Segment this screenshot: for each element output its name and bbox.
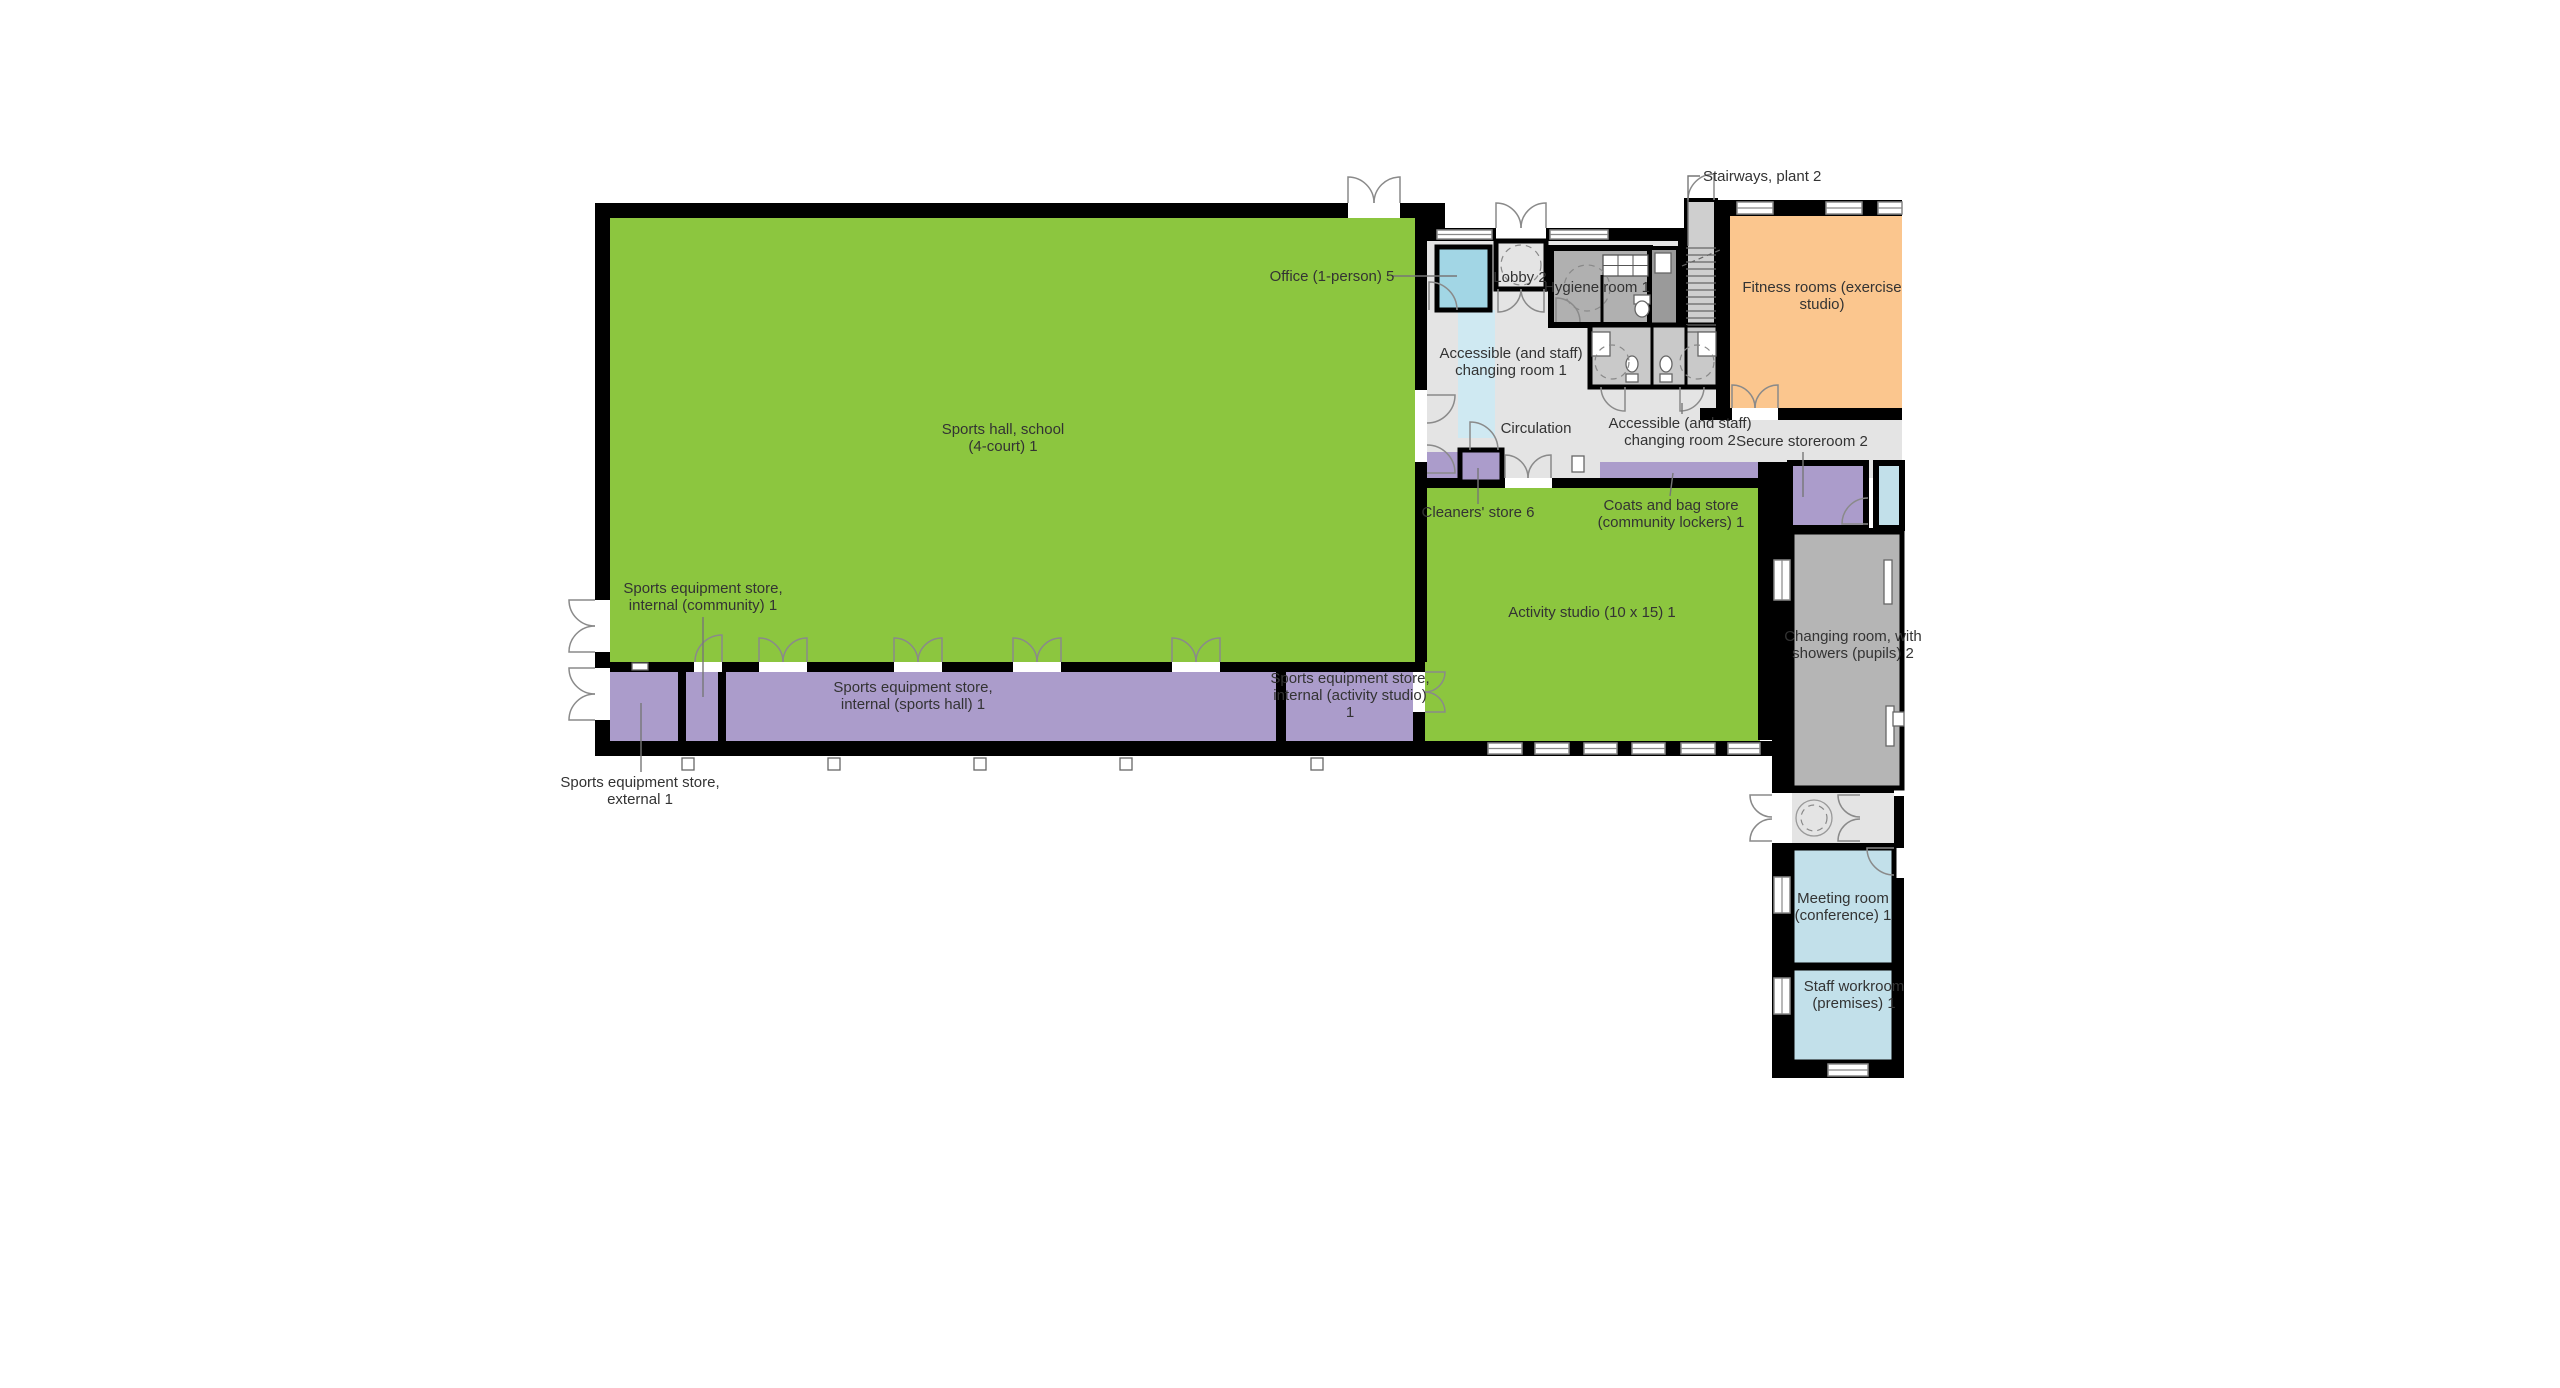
door-swing <box>1750 795 1772 817</box>
pod-wc-bowl <box>1660 356 1672 372</box>
wing-lobby <box>1792 793 1894 843</box>
label-circulation: Circulation <box>1501 420 1572 437</box>
floor-plan: Stairways, plant 2Office (1-person) 5Lob… <box>0 0 2560 1388</box>
pod-basin <box>1698 332 1716 356</box>
bench <box>1884 560 1892 604</box>
label-stairways-plant: Stairways, plant 2 <box>1703 168 1821 185</box>
door-swing <box>569 694 595 720</box>
door-swing <box>569 668 595 694</box>
wall-opening <box>759 662 807 672</box>
door-swing <box>1374 177 1400 203</box>
coats-bag-store-band <box>1600 462 1758 480</box>
wall-opening <box>595 600 610 652</box>
label-secure-storeroom: Secure storeroom 2 <box>1736 433 1868 450</box>
label-activity-studio: Activity studio (10 x 15) 1 <box>1508 604 1676 621</box>
label-meeting-room: Meeting room(conference) 1 <box>1795 890 1892 924</box>
column-marker <box>828 758 840 770</box>
label-store-external: Sports equipment store,external 1 <box>560 774 719 808</box>
label-cleaners-store: Cleaners' store 6 <box>1422 504 1535 521</box>
column-marker <box>1311 758 1323 770</box>
drinking-fountain <box>1572 456 1584 472</box>
store-community <box>686 672 718 741</box>
pod-wc-tank <box>1660 374 1672 382</box>
pod-wc-tank <box>1626 374 1638 382</box>
door-swing <box>569 600 595 626</box>
wall <box>678 672 686 741</box>
stair-shaft <box>1686 200 1716 334</box>
duct-box <box>1655 253 1671 273</box>
floor-plan-page: Stairways, plant 2Office (1-person) 5Lob… <box>0 0 2560 1388</box>
label-changing-pupils: Changing room, withshowers (pupils) 2 <box>1784 628 1922 662</box>
store-right-of-secure <box>1876 463 1902 528</box>
label-acc-changing-2: Accessible (and staff)changing room 2 <box>1608 415 1751 449</box>
office-room <box>1437 247 1490 310</box>
wall-opening <box>694 662 722 672</box>
wall-hatch <box>1893 712 1904 726</box>
wall-opening <box>1348 203 1400 218</box>
wall <box>718 672 726 741</box>
wall-opening <box>1772 793 1792 843</box>
label-acc-changing-1: Accessible (and staff)changing room 1 <box>1439 345 1582 379</box>
wall-opening <box>1172 662 1220 672</box>
door-swing <box>1521 203 1546 228</box>
label-lobby: Lobby 2 <box>1493 269 1546 286</box>
wall-hatch <box>632 663 648 670</box>
wall-opening <box>595 668 610 720</box>
door-swing <box>1348 177 1374 203</box>
secure-storeroom <box>1790 463 1866 528</box>
label-coats-bag-store: Coats and bag store(community lockers) 1 <box>1598 497 1745 531</box>
column-marker <box>974 758 986 770</box>
wall-opening <box>1505 478 1552 488</box>
wall-opening <box>1013 662 1061 672</box>
label-store-sports-hall: Sports equipment store,internal (sports … <box>833 679 992 713</box>
label-staff-workroom: Staff workroom(premises) 1 <box>1804 978 1905 1012</box>
hygiene-wc-bowl <box>1635 301 1649 317</box>
wall-opening <box>894 662 942 672</box>
label-hygiene-room: Hygiene room 1 <box>1544 279 1650 296</box>
store-external <box>610 672 678 741</box>
pod-basin <box>1592 332 1610 356</box>
cleaners-store-room <box>1460 450 1502 482</box>
store-sports-hall <box>726 672 1276 741</box>
label-store-community: Sports equipment store,internal (communi… <box>623 580 782 614</box>
column-marker <box>682 758 694 770</box>
wall-opening <box>1415 390 1427 462</box>
column-marker <box>1120 758 1132 770</box>
wall <box>595 203 1425 218</box>
door-swing <box>1750 819 1772 841</box>
label-office: Office (1-person) 5 <box>1270 268 1395 285</box>
pod-wc-bowl <box>1626 356 1638 372</box>
wall <box>1700 200 1902 216</box>
door-swing <box>1496 203 1521 228</box>
locker-band-west <box>1422 452 1458 478</box>
door-swing <box>569 626 595 652</box>
